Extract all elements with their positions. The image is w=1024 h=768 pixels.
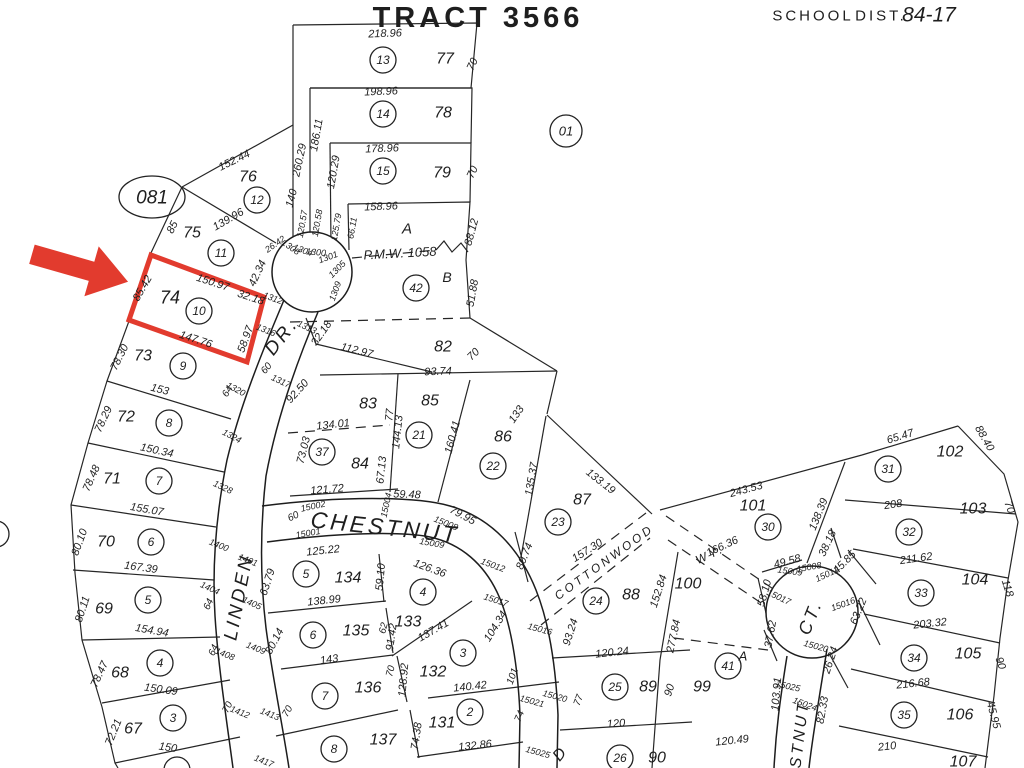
dimension-label: 104.34: [482, 609, 510, 644]
dimension-label: 120.49: [715, 733, 750, 748]
dimension-label: 78.30: [108, 342, 132, 373]
dimension-label: 150.97: [195, 272, 232, 294]
lot-number-text: 11: [215, 246, 227, 260]
dimension-label: 93.24: [561, 617, 581, 647]
lot-number-circle: 41: [715, 653, 741, 679]
parcel-number-label: 75: [183, 225, 201, 242]
lot-number-circle: 33: [908, 580, 934, 606]
dimension-label: 70: [465, 55, 481, 72]
dist-label: DIST.: [855, 7, 907, 24]
dimension-label: 120.24: [595, 645, 630, 660]
dimension-label: 59.10: [374, 562, 388, 591]
dimension-label: 63.79: [258, 567, 278, 597]
dimension-label: 216.68: [895, 676, 932, 692]
lot-number-circle: 14: [370, 101, 396, 127]
lot-number-circle: 35: [891, 702, 917, 728]
lot-number-text: 01: [559, 124, 573, 139]
lot-number-circle: 9: [170, 353, 196, 379]
dimension-label: 203.32: [912, 616, 948, 632]
lot-number-circle: 11: [208, 240, 234, 266]
dimension-label: 90: [993, 656, 1008, 672]
parcel-number-label: 106: [947, 707, 974, 724]
lot-number-circle: 8: [321, 736, 347, 762]
lot-number-text: 2: [466, 705, 474, 719]
parcel-number-label: A: [738, 649, 748, 664]
dimension-label: 15025: [525, 744, 553, 760]
parcel-number-label: 132: [420, 664, 447, 681]
parcel-number-label: 107: [950, 754, 978, 768]
dimension-label: 93.74: [424, 365, 452, 378]
lot-number-circle: 31: [875, 456, 901, 482]
parcel-number-label: 105: [955, 646, 982, 663]
parcel-number-label: 100: [675, 576, 702, 593]
dimension-label: 186.11: [308, 118, 326, 152]
parcel-number-label: 73: [134, 348, 152, 365]
lot-number-circle: 5: [293, 561, 319, 587]
lot-number-circle: 6: [138, 529, 164, 555]
dimension-label: 147.76: [178, 329, 215, 351]
dimension-label: 1412: [229, 704, 251, 721]
dimension-label: 120: [606, 717, 626, 730]
dimension-label: 82.33: [815, 695, 832, 725]
lot-number-text: 8: [166, 416, 173, 430]
dimension-label: 218.96: [367, 27, 403, 40]
dimension-label: 72.21: [103, 717, 124, 747]
dimension-label: 80.74: [514, 541, 535, 571]
parcel-number-label: B: [442, 269, 451, 285]
parcel-number-label: 103: [960, 501, 987, 518]
parcel-number-label: A: [401, 220, 412, 237]
street-name-linden-dr: DR.: [261, 314, 303, 360]
dimension-label: 178.96: [365, 142, 400, 155]
parcel-number-label: 88: [622, 587, 640, 604]
parcel-number-label: 99: [693, 679, 711, 696]
pmw-label: P.M.W. 1058: [363, 244, 437, 263]
dimension-label: 134.01: [316, 417, 351, 432]
dimension-label: 66.11: [345, 216, 359, 239]
lot-number-circle: 4: [410, 579, 436, 605]
parcel-number-label: 90: [648, 750, 666, 767]
school-label: SCHOOL: [772, 7, 853, 24]
dimension-label: 73.03: [295, 435, 314, 465]
lot-number-circle: 42: [403, 275, 429, 301]
lot-number-text: 31: [881, 462, 894, 476]
lot-number-text: 8: [331, 742, 338, 756]
lot-number-circle: 4: [147, 650, 173, 676]
lot-number-text: 081: [136, 188, 168, 209]
street-name-d-partial: D: [550, 743, 572, 765]
lot-number-text: 3: [170, 711, 177, 725]
lot-number-text: 24: [588, 594, 603, 608]
dimension-label: 60: [286, 509, 301, 524]
lot-number-circle: 3: [160, 705, 186, 731]
tract-title: TRACT 3566: [373, 2, 584, 34]
dimension-label: 85.42: [131, 274, 155, 304]
map-sheet-oval: 081: [119, 176, 185, 218]
block-circle: 01: [550, 115, 582, 147]
dimension-label: 135.37: [523, 461, 541, 497]
parcel-number-label: 79: [433, 165, 451, 182]
dimension-label: 80.11: [73, 595, 93, 624]
lot-number-text: 34: [907, 651, 921, 665]
lot-number-circle: 25: [602, 674, 628, 700]
dimension-label: 15012: [479, 556, 506, 574]
lot-number-circle: 6: [300, 622, 326, 648]
dimension-label: 1328: [212, 478, 234, 496]
dimension-label: 15001: [295, 526, 321, 540]
lot-number-text: 30: [761, 520, 775, 534]
dimension-label: 138.39: [807, 496, 831, 532]
dimension-label: 150.09: [143, 682, 178, 699]
lot-number-circle: 30: [755, 514, 781, 540]
dimension-label: 88.40: [972, 424, 997, 455]
dimension-label: 74.38: [409, 721, 425, 751]
dimension-label: 144.13: [390, 414, 406, 450]
parcel-number-label: 68: [111, 665, 129, 682]
lot-number-circle: 34: [901, 645, 927, 671]
lot-number-text: 4: [157, 656, 164, 670]
dimension-label: 59.48: [393, 488, 422, 501]
lot-number-text: 22: [485, 459, 500, 473]
lot-number-text: 33: [914, 586, 928, 600]
lot-number-text: 6: [310, 628, 317, 642]
dimension-label: 1413: [259, 706, 281, 723]
pointer-arrow: [25, 229, 135, 307]
lot-number-circle: 24: [583, 588, 609, 614]
dimension-label: 158.96: [364, 200, 399, 213]
dimension-label: 91.42: [384, 623, 400, 652]
dimension-label: 154.94: [134, 622, 169, 640]
parcel-number-label: 71: [103, 471, 121, 488]
parcel-number-label: 78: [434, 105, 452, 122]
lot-number-circle: 15: [370, 158, 396, 184]
dimension-label: 139.96: [211, 206, 247, 234]
lot-number-circle: 3: [450, 640, 476, 666]
dimension-label: 1408: [214, 646, 236, 663]
district-number: 84-17: [902, 3, 957, 26]
dimension-label: 37.62: [763, 620, 780, 649]
dimension-label: 118: [999, 578, 1016, 599]
lot-number-text: 14: [376, 107, 390, 121]
lot-number-text: 4: [420, 585, 427, 599]
dimension-label: 153: [149, 382, 171, 398]
lot-number-text: 23: [550, 515, 565, 529]
dimension-label: 121.72: [310, 482, 345, 497]
dimension-label: 208: [882, 498, 904, 513]
parcel-number-label: 72: [117, 409, 135, 426]
lot-number-circle: 7: [146, 468, 172, 494]
lot-number-text: 3: [460, 646, 467, 660]
dimension-label: 112.97: [339, 341, 375, 361]
dimension-label: 125.22: [306, 543, 341, 558]
dimension-label: 132.86: [458, 738, 494, 754]
lot-number-text: 7: [156, 474, 164, 488]
lot-number-circle: 5: [135, 587, 161, 613]
dimension-label: 126.36: [412, 557, 449, 580]
parcel-number-label: 84: [351, 456, 369, 473]
lot-number-circle: 8: [156, 410, 182, 436]
dimension-label: 143: [319, 653, 340, 668]
lot-number-circle: 13: [370, 47, 396, 73]
lot-number-text: 13: [376, 53, 390, 67]
parcel-number-label: 77: [436, 51, 455, 68]
lot-number-text: 32: [902, 525, 916, 539]
dimension-label: 140.42: [453, 679, 488, 694]
parcel-number-label: 70: [97, 534, 115, 551]
parcel-number-label: 67: [124, 721, 143, 738]
lot-number-text: 21: [411, 428, 425, 442]
tract-map-svg: 0810113141512111098765434221372223242526…: [0, 0, 1024, 768]
dimension-label: 77: [572, 693, 586, 708]
dimension-label: 160.41: [443, 419, 463, 455]
dimension-label: 90: [662, 682, 677, 698]
dimension-label: 85: [165, 218, 182, 235]
dimension-label: 211.62: [898, 551, 933, 568]
lot-number-text: 37: [315, 445, 330, 459]
dimension-label: 15020: [542, 688, 569, 704]
dimension-label: 1404: [199, 579, 221, 596]
parcel-number-label: 101: [740, 498, 767, 515]
dimension-label: 70: [384, 664, 398, 678]
parcel-number-label: 86: [494, 429, 512, 446]
lot-number-text: 15: [376, 164, 390, 178]
dimension-label: 74: [513, 709, 528, 724]
lot-number-circle: [0, 521, 9, 547]
lot-number-circles: 0810113141512111098765434221372223242526…: [0, 47, 934, 768]
lot-number-text: 9: [180, 359, 187, 373]
lot-number-text: 7: [322, 689, 330, 703]
parcel-number-label: 134: [335, 570, 362, 587]
lot-number-text: 35: [897, 708, 911, 722]
parcel-number-label: 76: [239, 169, 257, 186]
lot-number-circle: 22: [480, 453, 506, 479]
lot-number-text: 41: [721, 659, 734, 673]
dimension-label: 198.96: [364, 85, 399, 98]
dimension-label: 67.13: [374, 455, 389, 485]
lot-number-circle: [164, 757, 190, 768]
lot-number-circle: 21: [406, 422, 432, 448]
parcel-number-label: 83: [359, 396, 377, 413]
parcel-number-label: 137: [370, 732, 398, 749]
dimension-label: 140: [284, 187, 301, 209]
lot-number-circle: 23: [545, 509, 571, 535]
dimension-label: 42.34: [247, 258, 270, 288]
dimension-label: 70: [465, 163, 481, 180]
parcel-number-label: 104: [962, 572, 989, 589]
dimension-label: 133: [507, 403, 528, 426]
dimension-label: 88.12: [462, 217, 481, 247]
dimension-label: 152.84: [648, 573, 670, 609]
lot-number-text: 25: [607, 680, 622, 694]
lot-number-circle: 7: [312, 683, 338, 709]
dimension-label: 78.48: [81, 463, 104, 494]
lot-number-circle: 12: [244, 187, 270, 213]
dimension-label: 78.29: [93, 404, 116, 434]
lot-number-text: 5: [145, 593, 152, 607]
highlighted-parcel-number: 74: [160, 287, 180, 307]
lot-number-circle: 2: [457, 699, 483, 725]
dimension-label: 210: [876, 740, 897, 754]
parcel-number-label: 102: [937, 444, 964, 461]
lot-number-circle: 37: [309, 439, 335, 465]
parcel-number-label: 89: [639, 679, 657, 696]
parcel-number-label: 136: [355, 680, 382, 697]
dimension-label: 70: [465, 345, 483, 363]
parcel-number-label: 82: [434, 339, 452, 356]
lot-number-circle: 26: [607, 745, 633, 768]
lot-number-text: 42: [409, 281, 423, 295]
dimension-label: 15016: [527, 621, 554, 637]
lot-number-circle: 32: [896, 519, 922, 545]
lot-number-text: 5: [303, 567, 310, 581]
dimension-label: 277.84: [664, 618, 683, 654]
parcel-number-label: 131: [429, 715, 456, 732]
dimension-label: 128.92: [396, 663, 411, 698]
dimension-label: 1417: [253, 753, 276, 768]
dimension-label: 15017: [483, 592, 511, 610]
lot-number-text: 6: [148, 535, 155, 549]
lot-number-text: 10: [192, 304, 206, 318]
dimension-label: 70: [280, 704, 295, 720]
map-text-labels: TRACT 3566SCHOOLDIST.84-17LINDENDR.CHEST…: [69, 2, 1017, 768]
parcel-number-label: 135: [343, 623, 370, 640]
parcel-number-label: 87: [573, 492, 592, 509]
lot-number-text: 12: [250, 193, 264, 207]
highlighted-lot-circle: 10: [186, 298, 212, 324]
lot-number-text: 26: [612, 751, 627, 765]
dimension-label: 120.29: [325, 155, 343, 190]
dimension-label: 1400: [208, 537, 230, 554]
dimension-label: 45.95: [984, 700, 1003, 731]
parcel-number-label: 69: [95, 601, 113, 618]
plat-map-page: 0810113141512111098765434221372223242526…: [0, 0, 1024, 768]
parcel-number-label: 85: [421, 393, 439, 410]
